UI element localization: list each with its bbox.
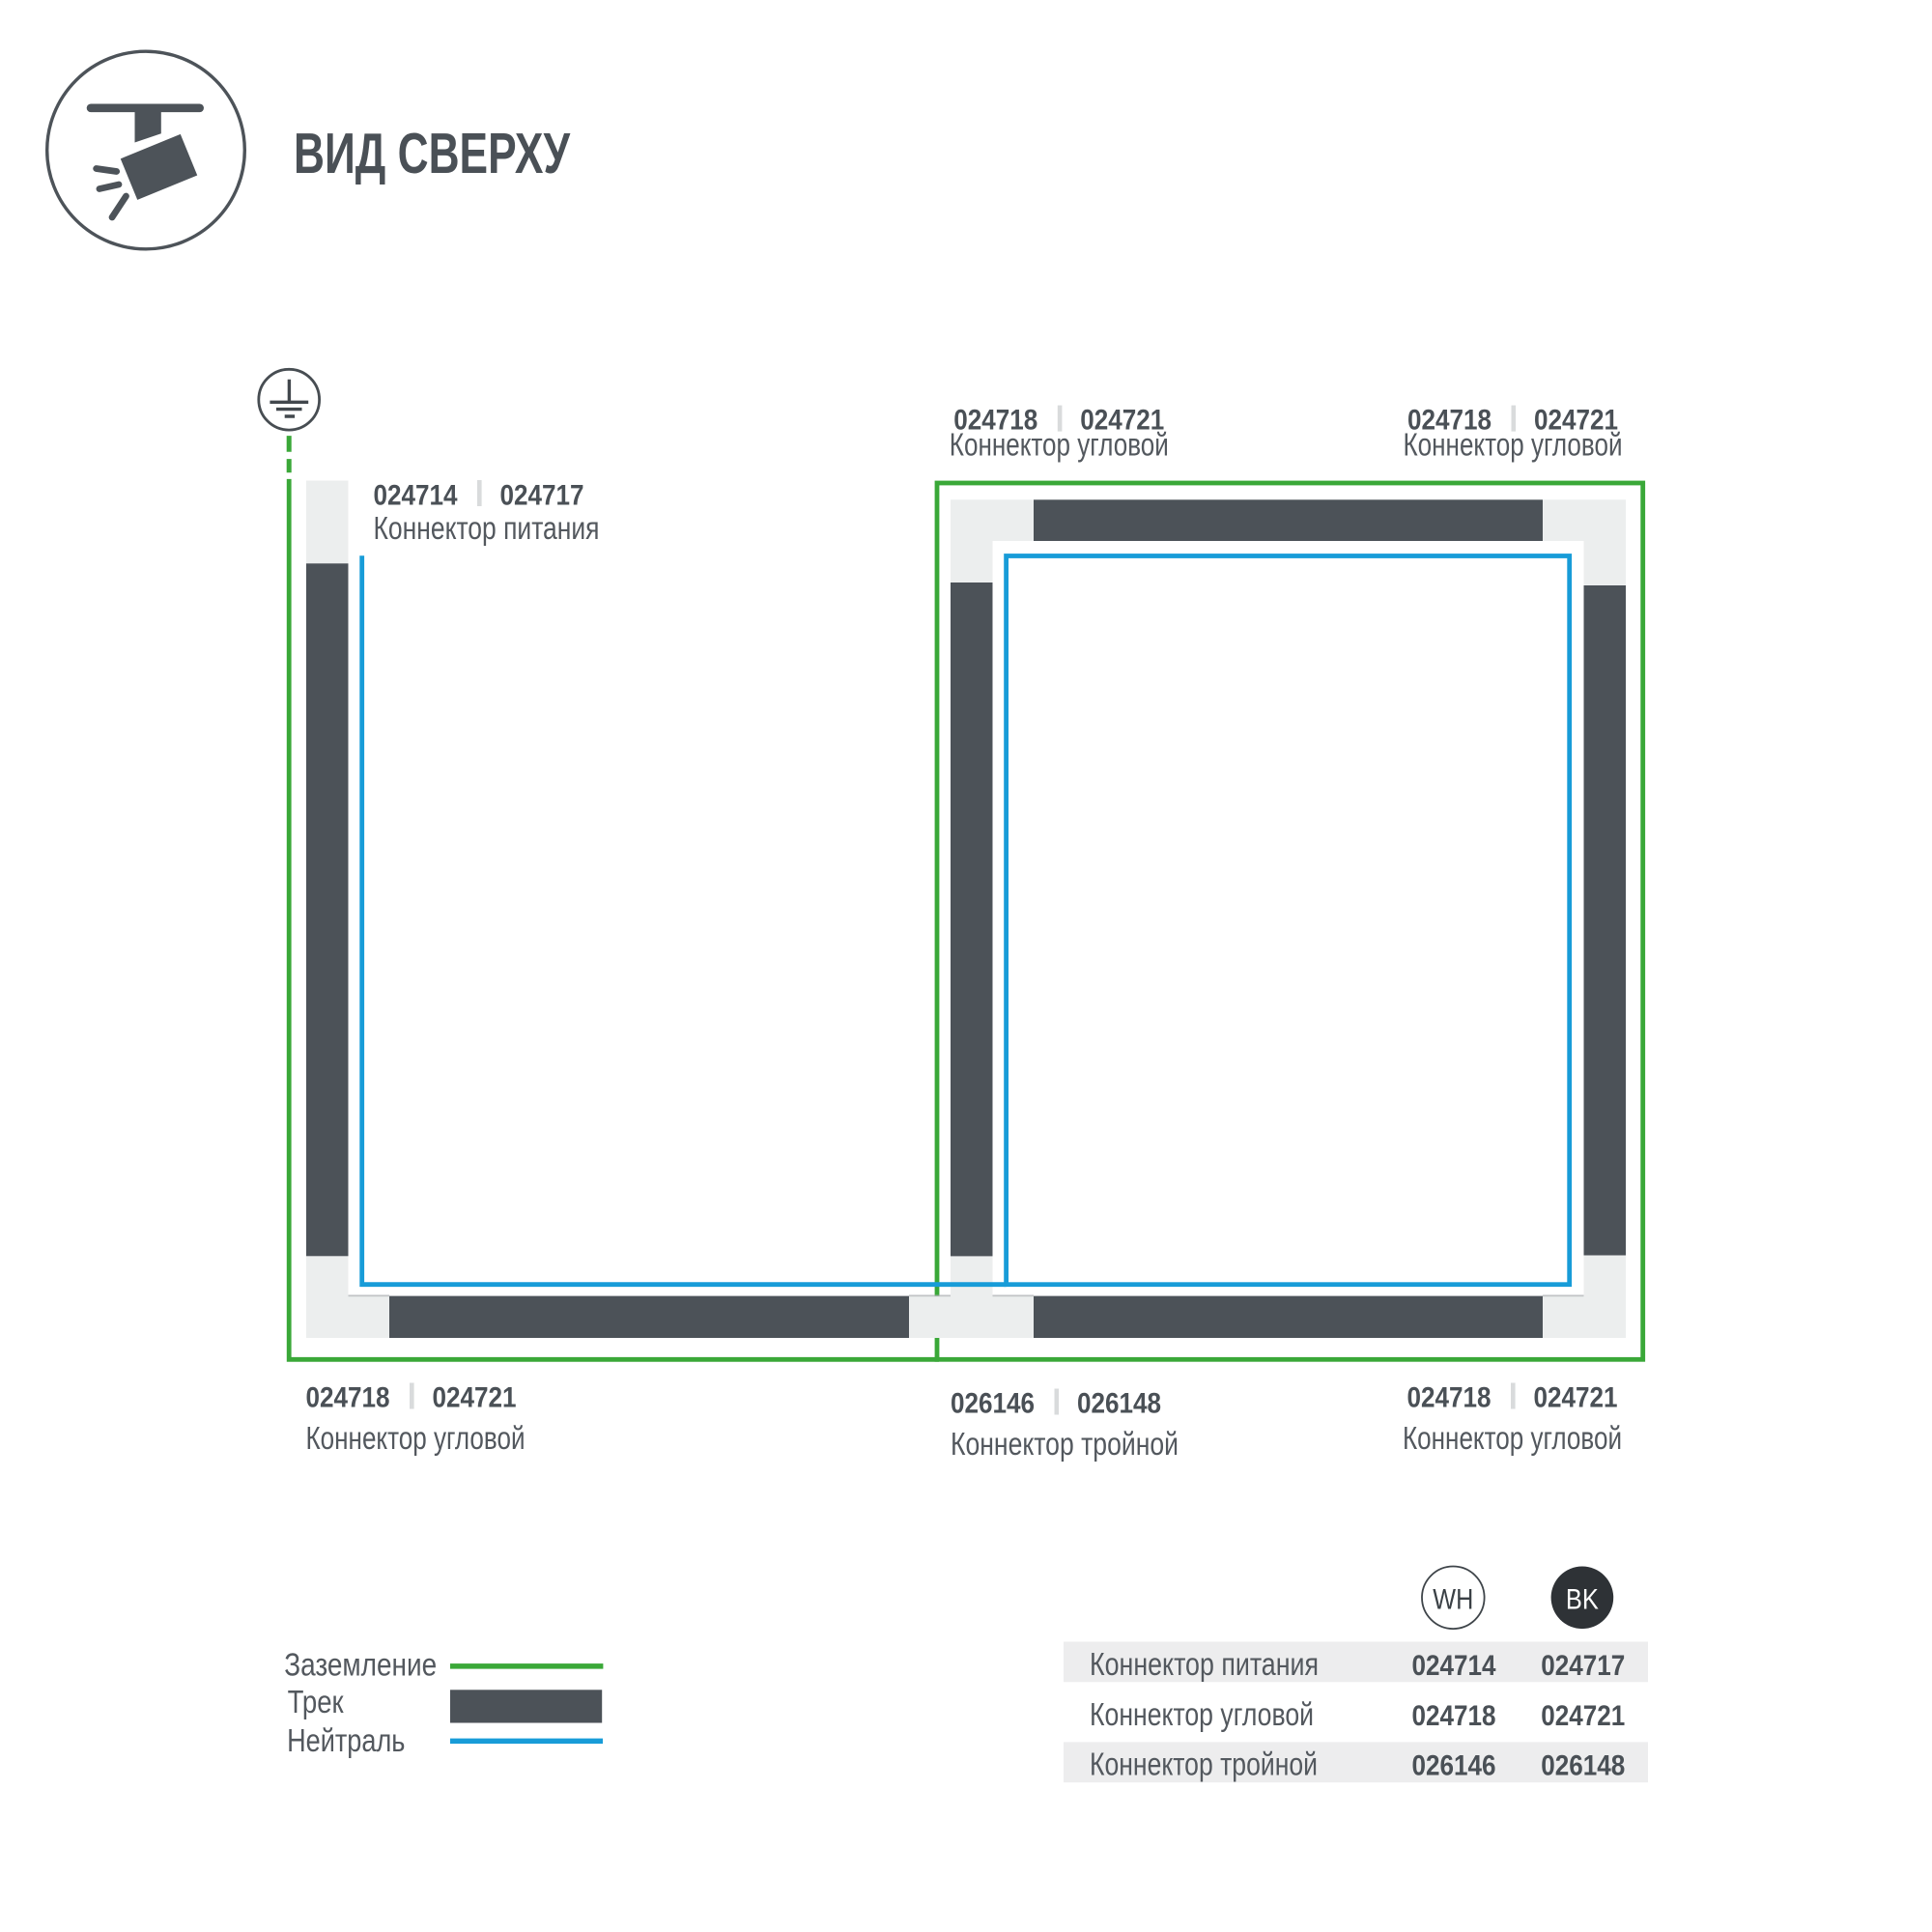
svg-text:024714: 024714 bbox=[374, 480, 458, 512]
svg-text:Коннектор тройной: Коннектор тройной bbox=[951, 1426, 1179, 1462]
svg-text:Нейтраль: Нейтраль bbox=[287, 1722, 405, 1758]
svg-text:026148: 026148 bbox=[1077, 1388, 1161, 1420]
svg-text:Коннектор тройной: Коннектор тройной bbox=[1090, 1747, 1318, 1782]
svg-text:Коннектор угловой: Коннектор угловой bbox=[1403, 1420, 1622, 1456]
svg-text:Коннектор угловой: Коннектор угловой bbox=[306, 1420, 526, 1456]
svg-text:ВИД СВЕРХУ: ВИД СВЕРХУ bbox=[294, 121, 571, 185]
svg-text:024714: 024714 bbox=[1412, 1650, 1496, 1682]
svg-text:024721: 024721 bbox=[433, 1382, 517, 1414]
svg-text:Коннектор питания: Коннектор питания bbox=[1090, 1646, 1319, 1682]
svg-text:026148: 026148 bbox=[1541, 1750, 1625, 1782]
svg-text:024721: 024721 bbox=[1541, 1700, 1625, 1732]
svg-text:Коннектор угловой: Коннектор угловой bbox=[950, 426, 1169, 462]
svg-text:Заземление: Заземление bbox=[284, 1647, 437, 1683]
svg-text:024718: 024718 bbox=[1407, 1382, 1492, 1414]
svg-text:BK: BK bbox=[1566, 1584, 1599, 1616]
svg-text:024718: 024718 bbox=[1412, 1700, 1496, 1732]
svg-text:WH: WH bbox=[1433, 1584, 1473, 1616]
svg-text:Коннектор угловой: Коннектор угловой bbox=[1404, 426, 1623, 462]
svg-text:Коннектор питания: Коннектор питания bbox=[374, 510, 600, 546]
svg-text:024718: 024718 bbox=[306, 1382, 390, 1414]
svg-text:024721: 024721 bbox=[1534, 1382, 1618, 1414]
svg-text:026146: 026146 bbox=[1412, 1750, 1496, 1782]
svg-text:024717: 024717 bbox=[1541, 1650, 1625, 1682]
svg-text:024717: 024717 bbox=[500, 480, 584, 512]
svg-text:Трек: Трек bbox=[288, 1684, 344, 1719]
svg-text:Коннектор угловой: Коннектор угловой bbox=[1090, 1696, 1314, 1732]
svg-text:026146: 026146 bbox=[951, 1388, 1035, 1420]
